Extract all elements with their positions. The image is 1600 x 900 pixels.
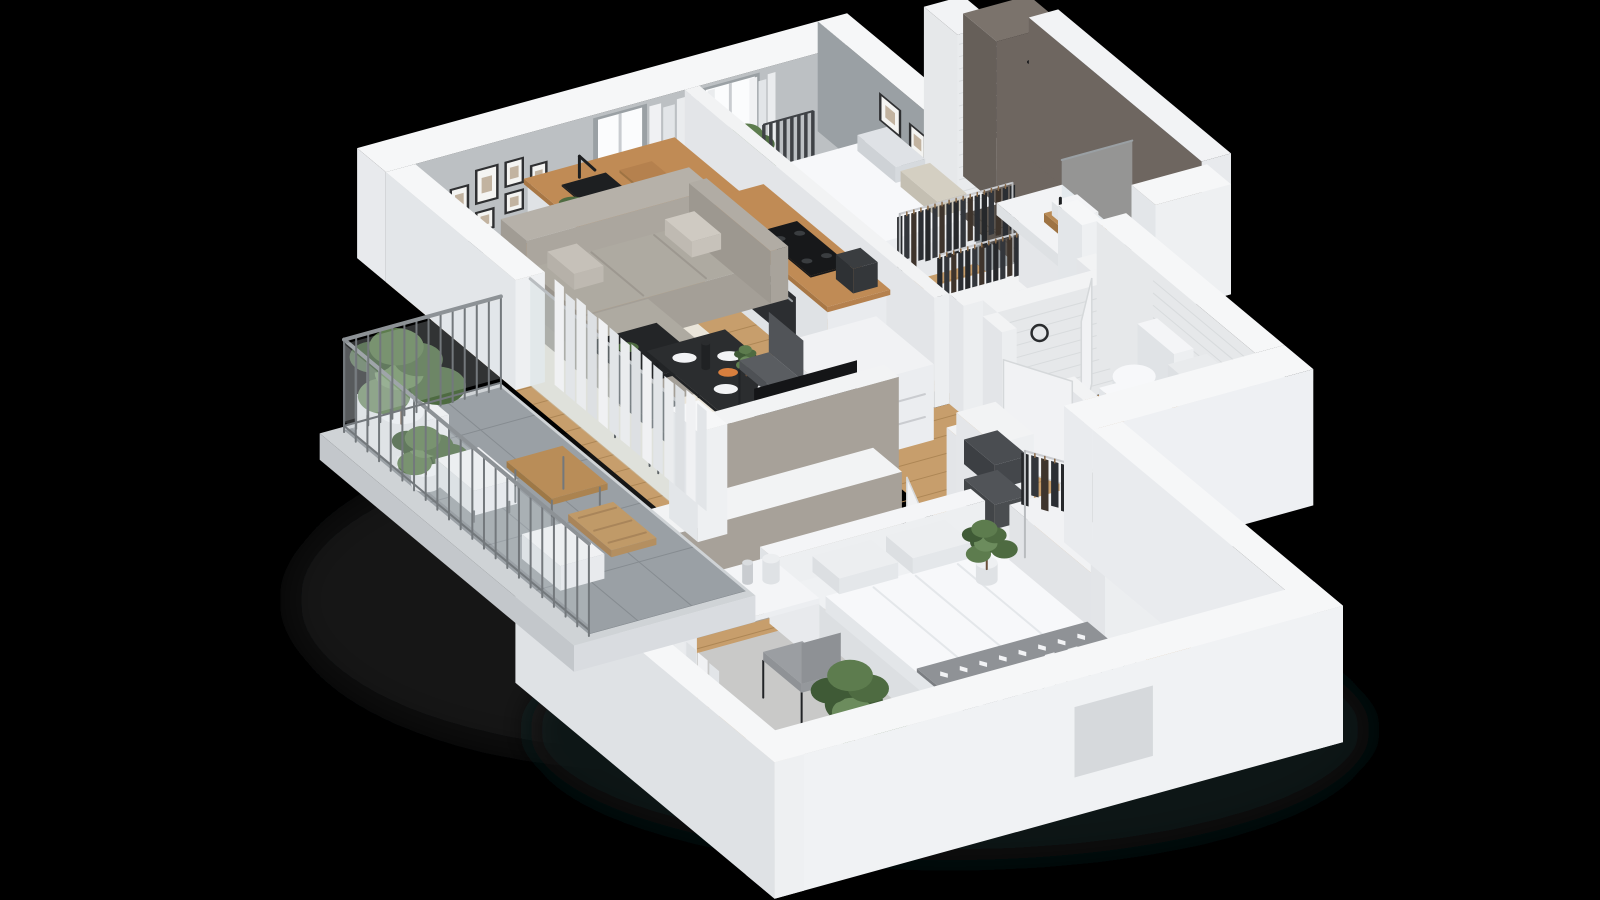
plate: [714, 384, 738, 394]
apartment-3d-floorplan: [0, 0, 1600, 900]
art-frame: [475, 164, 499, 206]
burner: [794, 231, 805, 236]
desk-lamp: [762, 554, 779, 585]
plate: [672, 353, 696, 363]
desk-vase: [742, 560, 753, 585]
floorplan-stage: [0, 0, 1600, 900]
art-frame: [504, 157, 524, 189]
orange-dish: [718, 368, 738, 377]
burner: [821, 253, 832, 258]
bottle: [701, 341, 710, 370]
burner: [801, 259, 812, 264]
